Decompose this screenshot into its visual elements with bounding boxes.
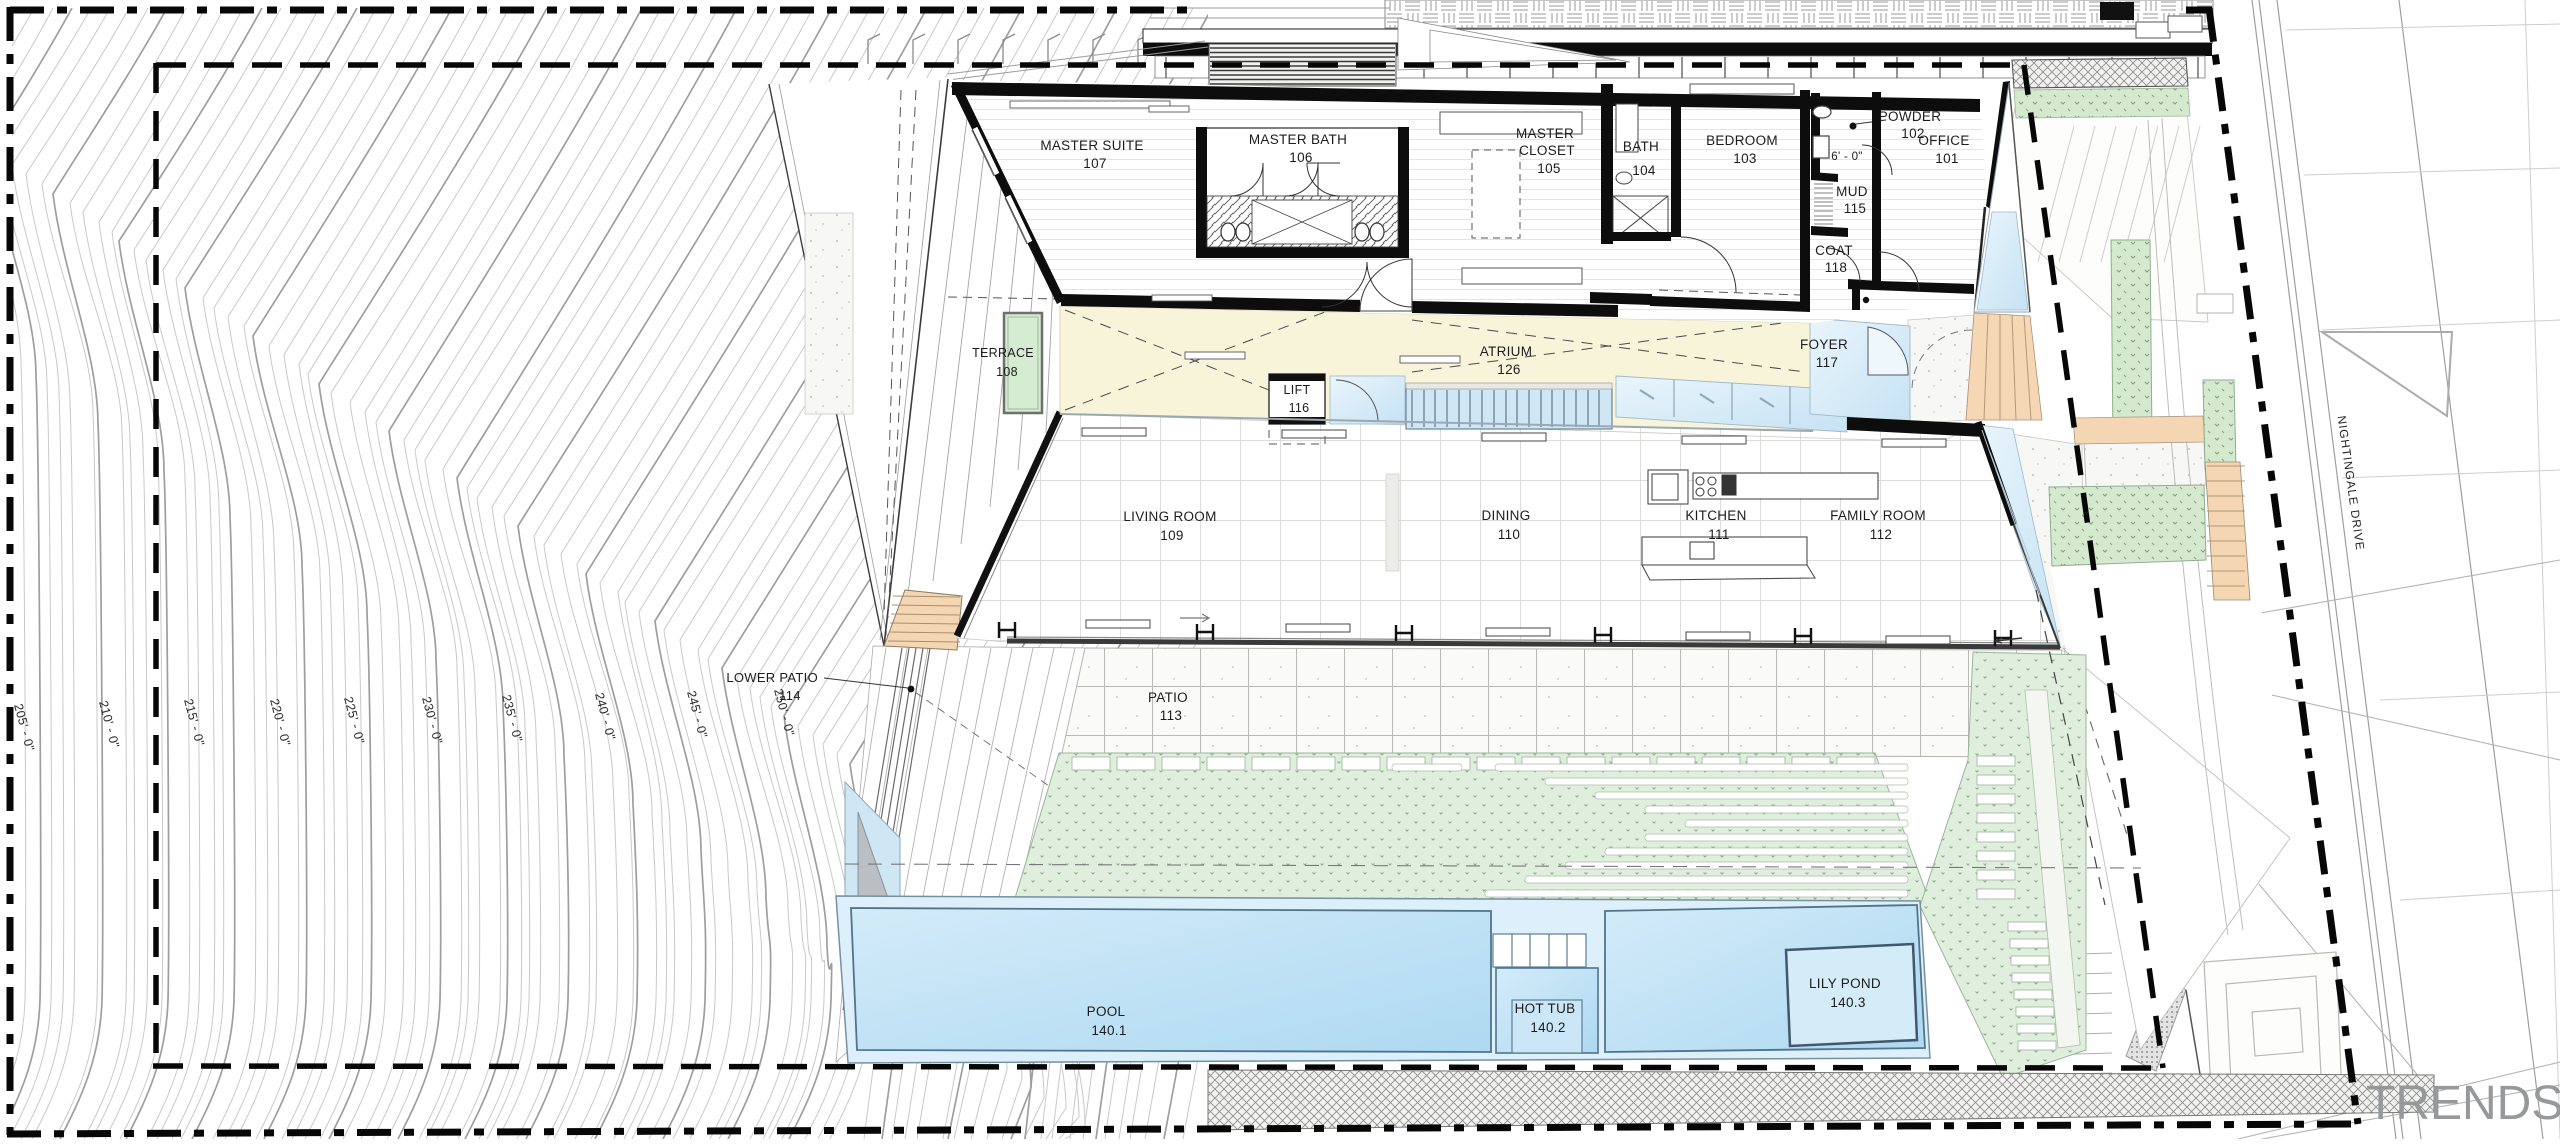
svg-text:DINING: DINING bbox=[1481, 508, 1530, 523]
svg-text:117: 117 bbox=[1816, 355, 1838, 370]
svg-text:LIFT: LIFT bbox=[1284, 383, 1311, 397]
svg-text:111: 111 bbox=[1708, 527, 1729, 542]
svg-text:MASTER SUITE: MASTER SUITE bbox=[1040, 138, 1143, 153]
svg-text:ATRIUM: ATRIUM bbox=[1480, 344, 1533, 359]
svg-text:POOL: POOL bbox=[1087, 1004, 1126, 1019]
svg-text:140.3: 140.3 bbox=[1830, 995, 1865, 1010]
svg-text:FAMILY ROOM: FAMILY ROOM bbox=[1830, 508, 1926, 523]
svg-text:BATH: BATH bbox=[1623, 139, 1659, 154]
svg-text:113: 113 bbox=[1160, 708, 1182, 723]
svg-text:TERRACE: TERRACE bbox=[972, 346, 1034, 360]
svg-text:OFFICE: OFFICE bbox=[1918, 133, 1969, 148]
svg-text:110: 110 bbox=[1498, 527, 1520, 542]
svg-text:MASTER: MASTER bbox=[1516, 126, 1574, 141]
svg-text:HOT TUB: HOT TUB bbox=[1515, 1001, 1576, 1016]
svg-text:140.2: 140.2 bbox=[1530, 1020, 1565, 1035]
svg-text:140.1: 140.1 bbox=[1091, 1023, 1126, 1038]
svg-text:112: 112 bbox=[1870, 527, 1892, 542]
svg-text:MUD: MUD bbox=[1836, 184, 1868, 199]
svg-text:LOWER PATIO: LOWER PATIO bbox=[726, 670, 818, 685]
svg-text:101: 101 bbox=[1935, 151, 1958, 166]
svg-text:114: 114 bbox=[779, 688, 801, 703]
svg-text:103: 103 bbox=[1733, 151, 1756, 166]
svg-text:FOYER: FOYER bbox=[1800, 337, 1848, 352]
svg-text:TRENDS: TRENDS bbox=[2366, 1077, 2560, 1130]
svg-text:126: 126 bbox=[1497, 362, 1520, 377]
svg-text:6' - 0": 6' - 0" bbox=[1831, 151, 1862, 163]
svg-text:115: 115 bbox=[1844, 201, 1866, 216]
svg-text:118: 118 bbox=[1825, 260, 1847, 275]
svg-text:109: 109 bbox=[1160, 528, 1183, 543]
svg-text:108: 108 bbox=[996, 365, 1018, 379]
svg-text:COAT: COAT bbox=[1815, 243, 1853, 258]
svg-text:BEDROOM: BEDROOM bbox=[1706, 133, 1778, 148]
svg-text:POWDER: POWDER bbox=[1879, 109, 1942, 124]
svg-text:106: 106 bbox=[1289, 150, 1312, 165]
svg-text:104: 104 bbox=[1632, 163, 1656, 178]
svg-text:LIVING ROOM: LIVING ROOM bbox=[1123, 509, 1216, 524]
svg-text:PATIO: PATIO bbox=[1148, 690, 1188, 705]
svg-text:MASTER BATH: MASTER BATH bbox=[1249, 132, 1347, 147]
svg-text:116: 116 bbox=[1289, 401, 1310, 415]
svg-text:KITCHEN: KITCHEN bbox=[1685, 508, 1746, 523]
svg-text:CLOSET: CLOSET bbox=[1519, 143, 1575, 158]
svg-text:107: 107 bbox=[1083, 156, 1106, 171]
svg-text:LILY POND: LILY POND bbox=[1809, 976, 1881, 991]
svg-text:105: 105 bbox=[1537, 161, 1560, 176]
